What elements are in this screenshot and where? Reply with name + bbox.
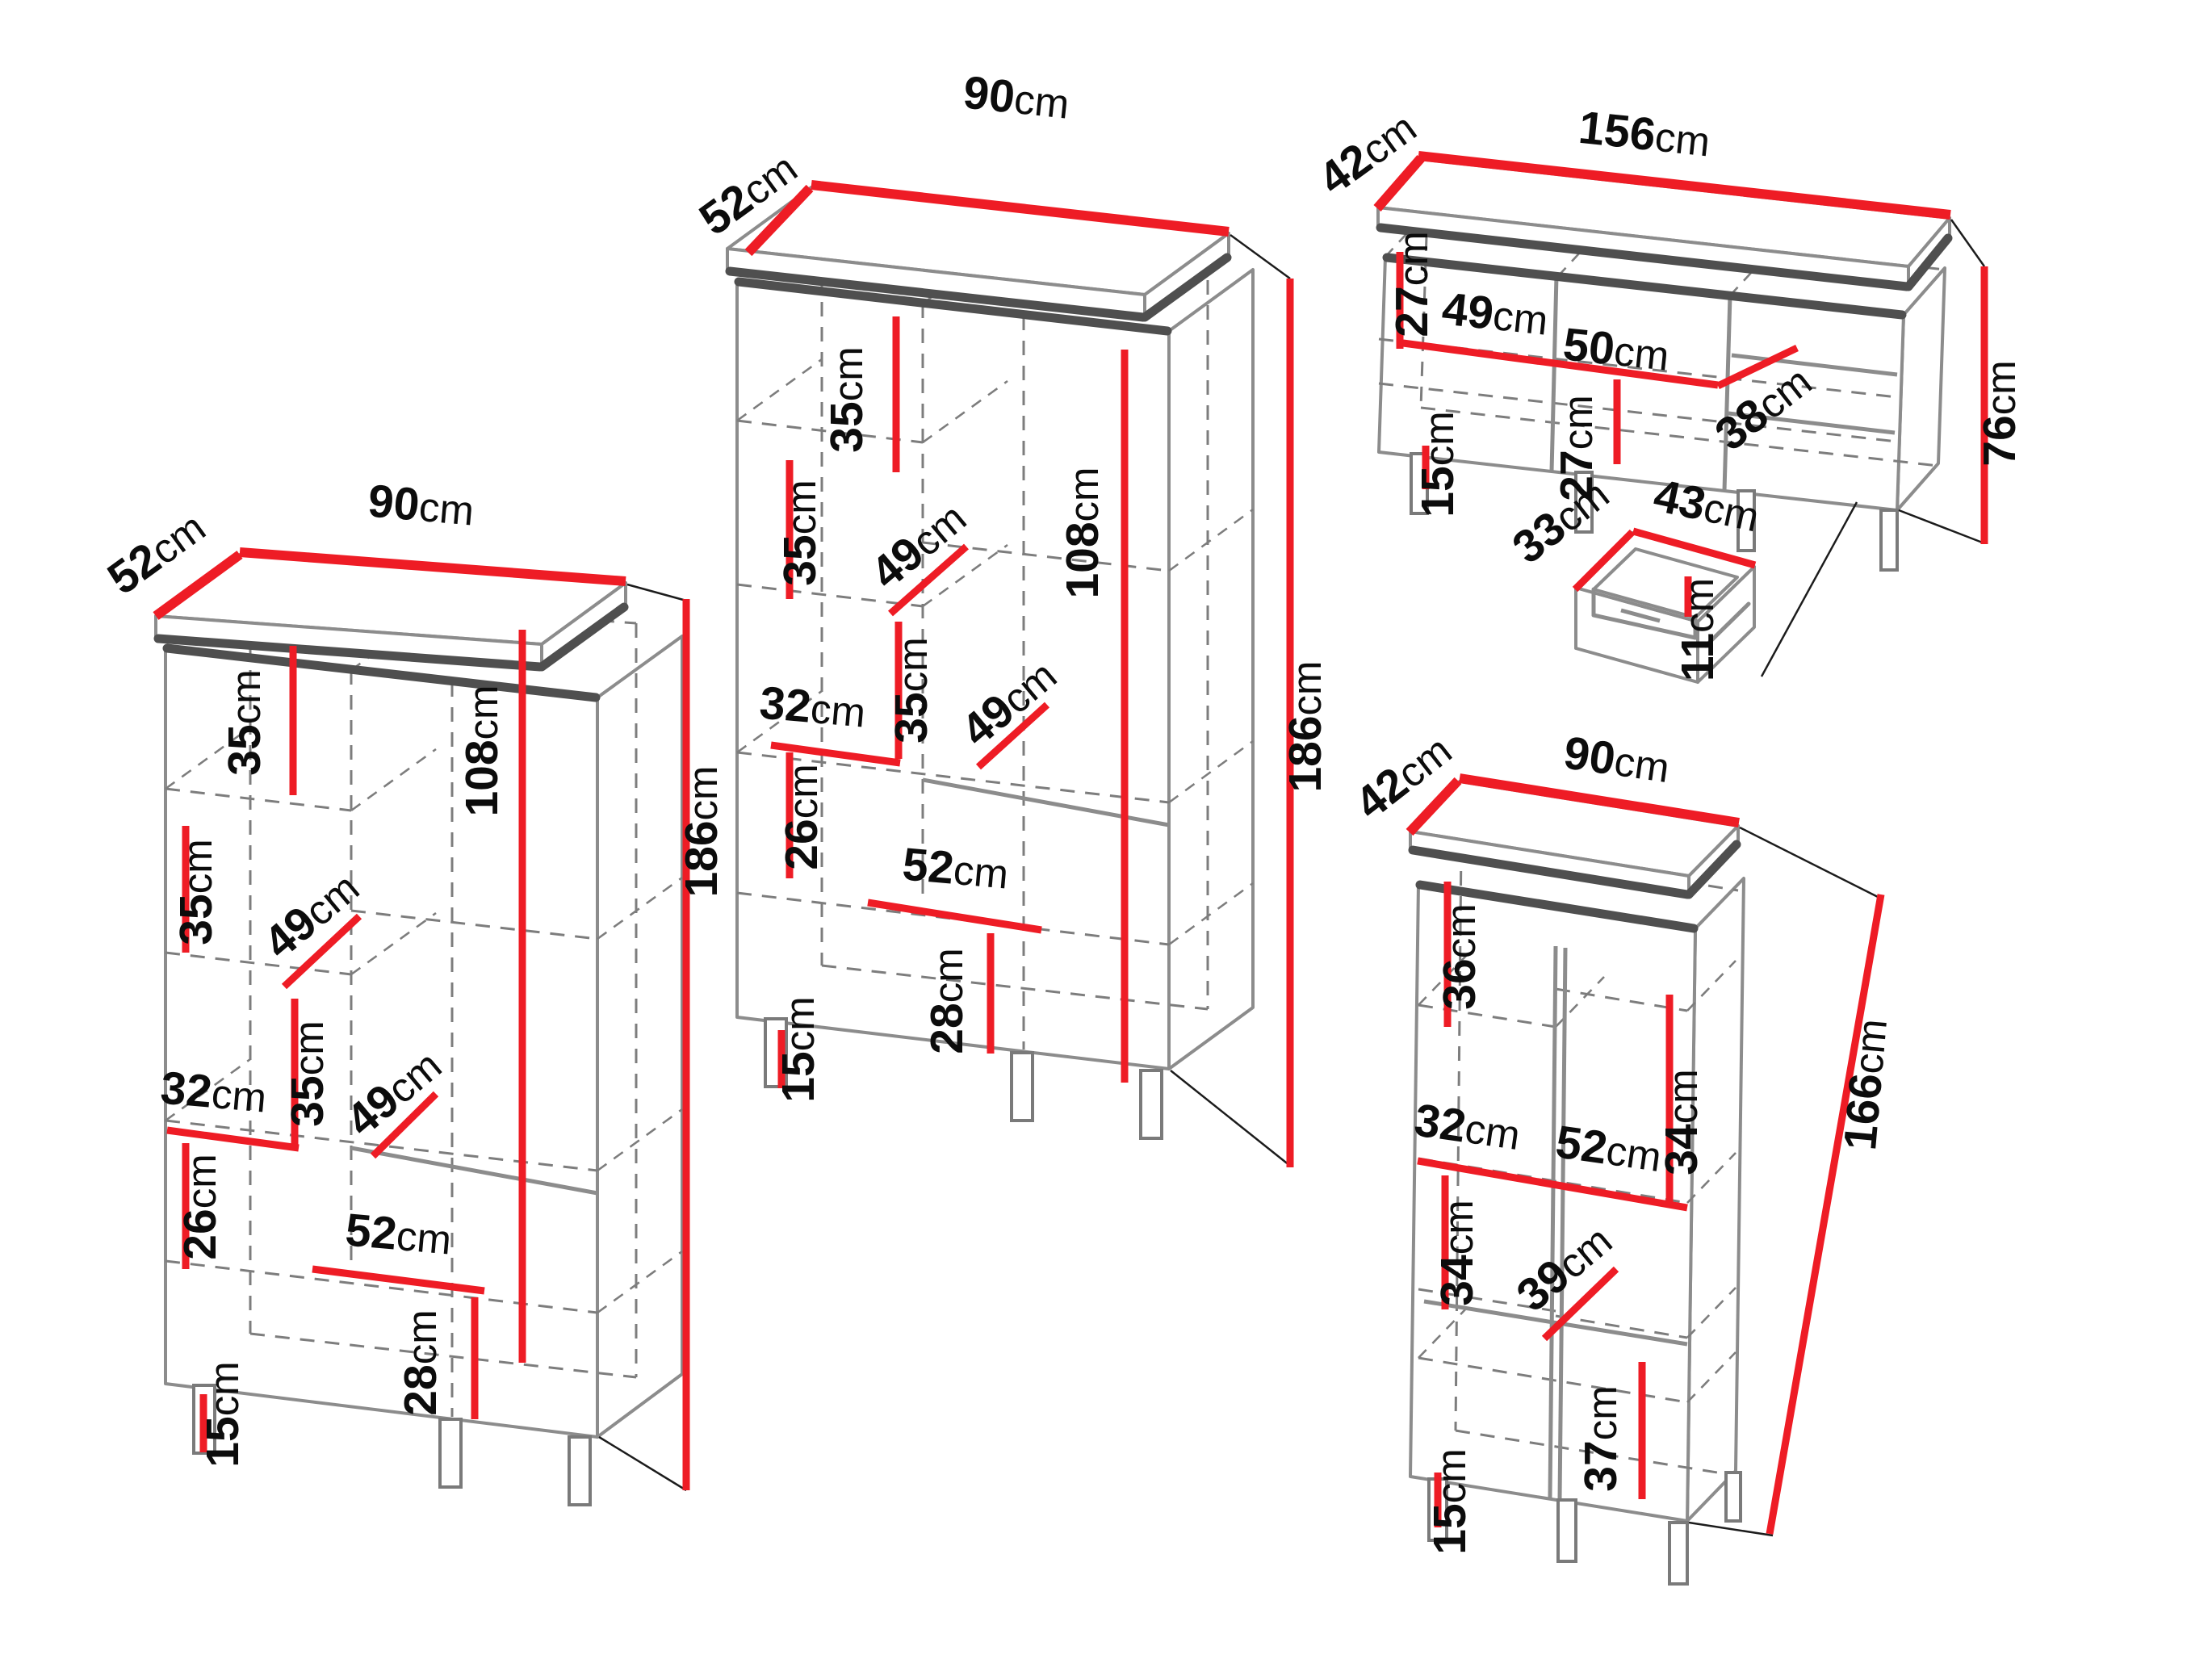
dim-label-h37: 37cm xyxy=(1575,1385,1627,1491)
wardrobe-b: 52cm 90cm 35cm 35cm 49cm 35cm 49cm 32cm xyxy=(690,66,1331,1167)
dim-label-shelf-c: 35cm xyxy=(282,1020,333,1126)
dim-label-width: 90cm xyxy=(1561,727,1673,793)
dim-label-top-left: 27cm xyxy=(1386,231,1438,337)
wardrobe-a: 52cm 90cm 35cm 35cm 49cm 35cm 49cm 32cm xyxy=(98,475,727,1505)
dim-wardrobe-b-shelf-c: 35cm xyxy=(886,622,937,759)
dim-label-width: 90cm xyxy=(961,66,1071,128)
dim-label-h36: 36cm xyxy=(1434,903,1485,1009)
dim-label-leg: 15cm xyxy=(1412,411,1464,517)
furniture-dimension-diagram: 52cm 90cm 35cm 35cm 49cm 35cm 49cm 32cm xyxy=(0,0,2212,1659)
dim-label-total: 76cm xyxy=(1974,360,2026,466)
dim-sideboard-leg: 15cm xyxy=(1412,411,1464,517)
dim-label-h28: 28cm xyxy=(395,1309,446,1415)
dim-label-leg: 15cm xyxy=(773,996,824,1102)
dim-label-shelf-b: 35cm xyxy=(774,480,826,585)
dim-wardrobe-b-leg: 15cm xyxy=(773,996,824,1102)
dim-label-height: 11cm xyxy=(1672,578,1724,681)
wardrobe-b-side-face xyxy=(1169,270,1253,1069)
dim-label-width: 156cm xyxy=(1577,102,1713,167)
dim-label-leg: 15cm xyxy=(1424,1448,1476,1554)
dim-cabinet-total: 166cm xyxy=(1770,894,1897,1534)
dim-label-inner: 108cm xyxy=(1057,467,1108,598)
dim-label-h28: 28cm xyxy=(921,948,973,1054)
dim-label-total: 186cm xyxy=(1280,660,1331,792)
dim-drawer-height: 11cm xyxy=(1672,576,1724,681)
dim-label-width: 90cm xyxy=(366,475,475,535)
dim-wardrobe-b-total: 186cm xyxy=(1280,279,1331,1167)
dim-label-shelf-b: 35cm xyxy=(170,839,222,945)
dim-wardrobe-b-shelf-b: 35cm xyxy=(774,460,826,599)
cabinet: 42cm 90cm 36cm 34cm 32cm 52cm 34cm 39cm xyxy=(1346,723,1897,1584)
dim-wardrobe-b-h26: 26cm xyxy=(776,752,827,878)
dim-label-inner: 108cm xyxy=(456,685,508,816)
drawer-detail: 33cm 43cm 11cm xyxy=(1503,467,1764,682)
dim-wardrobe-a-leg: 15cm xyxy=(197,1361,249,1467)
dim-label-h26: 26cm xyxy=(776,764,827,869)
dim-label-total: 186cm xyxy=(676,765,727,897)
dim-label-total: 166cm xyxy=(1834,1016,1897,1152)
dim-label-left34: 34cm xyxy=(1431,1200,1483,1305)
sideboard-side-face xyxy=(1897,268,1945,510)
dim-label-h26: 26cm xyxy=(174,1154,226,1259)
diagram-canvas: 52cm 90cm 35cm 35cm 49cm 35cm 49cm 32cm xyxy=(0,0,2212,1659)
dim-wardrobe-a-shelf-b: 35cm xyxy=(170,826,222,953)
dim-label-shelf-a: 35cm xyxy=(219,669,270,775)
drawer-callout-line xyxy=(1762,502,1857,677)
wardrobe-a-side-face xyxy=(597,636,682,1437)
dim-label-shelf-a: 35cm xyxy=(821,346,873,452)
dim-sideboard-top-left: 27cm xyxy=(1386,231,1438,349)
dim-label-shelf-c: 35cm xyxy=(886,637,937,743)
dim-label-right34: 34cm xyxy=(1656,1069,1707,1175)
dim-wardrobe-a-h26: 26cm xyxy=(174,1143,226,1269)
dim-wardrobe-a-total: 186cm xyxy=(676,599,727,1490)
dim-label-leg: 15cm xyxy=(197,1361,249,1467)
dim-cabinet-leg: 15cm xyxy=(1424,1448,1476,1554)
dim-sideboard-total: 76cm xyxy=(1974,266,2026,544)
